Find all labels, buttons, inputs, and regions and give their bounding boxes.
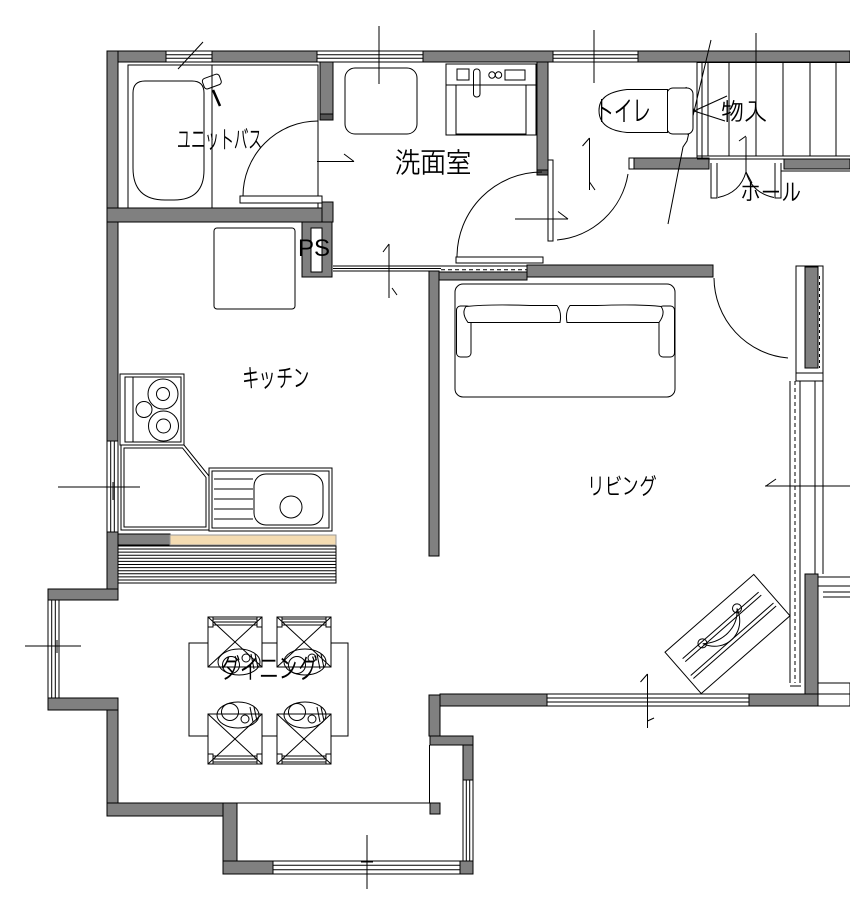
svg-text:PS: PS — [298, 235, 330, 262]
